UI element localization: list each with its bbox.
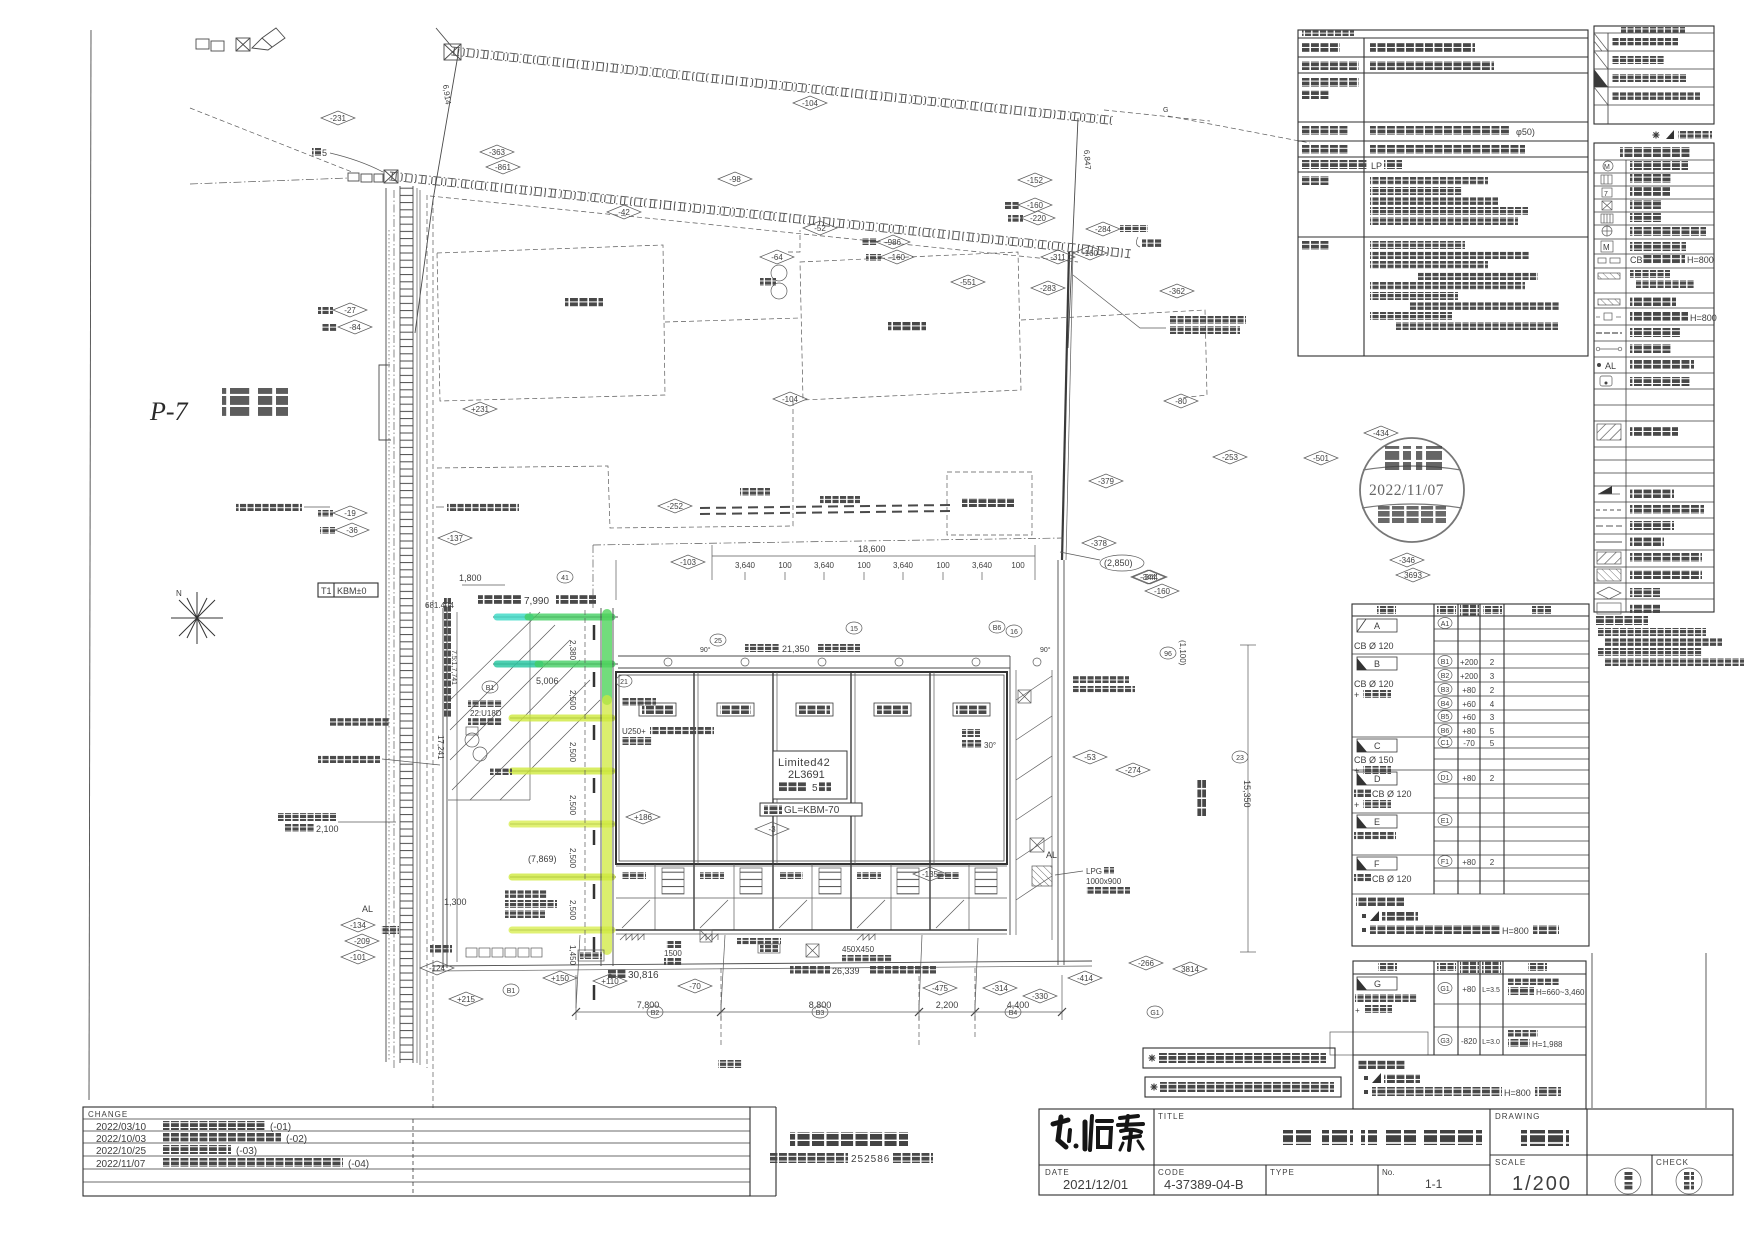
svg-text:+110: +110 xyxy=(601,977,619,986)
svg-text:5: 5 xyxy=(1490,739,1495,748)
svg-text:-160: -160 xyxy=(1027,201,1044,210)
svg-text:H=800: H=800 xyxy=(1687,255,1714,265)
svg-text:+215: +215 xyxy=(457,995,476,1004)
svg-text:B1: B1 xyxy=(507,988,516,995)
svg-text:-84: -84 xyxy=(349,323,361,332)
svg-text:-103: -103 xyxy=(680,558,697,567)
svg-text:CHECK: CHECK xyxy=(1656,1158,1689,1167)
svg-text:-134: -134 xyxy=(350,921,367,930)
svg-text:5: 5 xyxy=(812,783,818,794)
svg-text:252586: 252586 xyxy=(851,1154,890,1165)
svg-text:AL: AL xyxy=(1046,850,1057,860)
svg-text:3,640: 3,640 xyxy=(814,561,835,570)
svg-text:G: G xyxy=(1374,979,1381,989)
svg-text:8,800: 8,800 xyxy=(809,1000,832,1010)
svg-text:H=660~3,460: H=660~3,460 xyxy=(1536,988,1585,997)
svg-text:5: 5 xyxy=(322,148,327,158)
svg-text:100: 100 xyxy=(936,561,950,570)
svg-text:-36: -36 xyxy=(346,526,358,535)
svg-text:2,200: 2,200 xyxy=(936,1000,959,1010)
svg-text:+: + xyxy=(1355,1006,1360,1015)
svg-text:H=1,988: H=1,988 xyxy=(1532,1040,1563,1049)
svg-text:+200: +200 xyxy=(1460,658,1479,667)
svg-text:-311: -311 xyxy=(1050,253,1066,262)
svg-text:-346: -346 xyxy=(1399,556,1416,565)
svg-text:+: + xyxy=(1354,800,1359,810)
svg-text:1,450: 1,450 xyxy=(568,945,577,966)
svg-text:1/200: 1/200 xyxy=(1512,1173,1572,1195)
svg-text:-19: -19 xyxy=(344,509,356,518)
svg-text:H=800: H=800 xyxy=(1502,926,1529,936)
svg-text:+80: +80 xyxy=(1462,686,1476,695)
svg-text:-160: -160 xyxy=(1082,249,1099,258)
svg-text:-820: -820 xyxy=(1461,1037,1478,1046)
svg-text:3,640: 3,640 xyxy=(972,561,993,570)
svg-text:L=3.5: L=3.5 xyxy=(1482,987,1500,994)
svg-text:3693: 3693 xyxy=(1404,571,1422,580)
svg-text:B4: B4 xyxy=(1441,701,1450,708)
svg-text:-314: -314 xyxy=(992,984,1009,993)
svg-text:No.: No. xyxy=(1382,1168,1394,1177)
svg-text:-231: -231 xyxy=(330,114,347,123)
svg-text:90°: 90° xyxy=(1040,646,1051,654)
svg-text:2: 2 xyxy=(1490,774,1495,783)
svg-text:H=800: H=800 xyxy=(1690,313,1717,323)
svg-text:CB Ø 150: CB Ø 150 xyxy=(1354,755,1394,765)
svg-text:G3: G3 xyxy=(1440,1038,1449,1045)
svg-text:-252: -252 xyxy=(667,502,684,511)
svg-text:C1: C1 xyxy=(1441,740,1450,747)
svg-text:2,380: 2,380 xyxy=(568,640,577,661)
svg-text:-362: -362 xyxy=(1169,287,1186,296)
svg-text:25: 25 xyxy=(714,638,722,645)
svg-text:-98: -98 xyxy=(729,175,741,184)
svg-text:-53: -53 xyxy=(1084,753,1096,762)
svg-text:4-37389-04-B: 4-37389-04-B xyxy=(1164,1177,1244,1192)
svg-text:G: G xyxy=(1163,107,1168,114)
svg-text:26,339: 26,339 xyxy=(832,966,860,976)
svg-text:P-7: P-7 xyxy=(149,397,189,426)
svg-text:AL: AL xyxy=(1605,361,1616,371)
svg-text:+186: +186 xyxy=(634,813,653,822)
svg-text:7,990: 7,990 xyxy=(524,596,549,607)
svg-text:-253: -253 xyxy=(1222,453,1239,462)
svg-text:CB Ø 120: CB Ø 120 xyxy=(1354,641,1394,651)
svg-text:+80: +80 xyxy=(1462,858,1476,867)
svg-text:2,500: 2,500 xyxy=(568,690,577,711)
svg-text:100: 100 xyxy=(778,561,792,570)
svg-text:GL=KBM-70: GL=KBM-70 xyxy=(784,805,840,816)
svg-text:2,100: 2,100 xyxy=(316,824,339,834)
svg-text:5,006: 5,006 xyxy=(536,676,559,686)
svg-text:B: B xyxy=(1374,659,1380,669)
svg-text:17,241: 17,241 xyxy=(436,735,445,760)
svg-text:-160: -160 xyxy=(889,253,906,262)
svg-text:2,500: 2,500 xyxy=(568,900,577,921)
svg-text:3: 3 xyxy=(1490,713,1495,722)
svg-text:G1: G1 xyxy=(1440,986,1449,993)
svg-text:7.5:1,7,741: 7.5:1,7,741 xyxy=(450,650,457,685)
svg-text:CB Ø 120: CB Ø 120 xyxy=(1354,679,1394,689)
svg-text:B1: B1 xyxy=(1441,659,1450,666)
svg-text:-64: -64 xyxy=(771,253,783,262)
svg-text:φ50): φ50) xyxy=(1516,127,1535,137)
svg-text:B2: B2 xyxy=(1441,673,1450,680)
svg-text:H=800: H=800 xyxy=(1504,1088,1531,1098)
svg-text:+80: +80 xyxy=(1462,985,1476,994)
svg-text:2: 2 xyxy=(1490,686,1495,695)
svg-text:30,816: 30,816 xyxy=(628,970,659,981)
svg-text:(1,100): (1,100) xyxy=(1178,640,1187,666)
svg-text:B3: B3 xyxy=(1441,687,1450,694)
svg-text:6,847: 6,847 xyxy=(1082,150,1092,171)
svg-text:3,640: 3,640 xyxy=(893,561,914,570)
svg-text:100: 100 xyxy=(1011,561,1025,570)
svg-text:DATE: DATE xyxy=(1045,1168,1070,1177)
svg-text:-70: -70 xyxy=(1463,739,1475,748)
svg-text:15: 15 xyxy=(850,626,858,633)
svg-text:B1: B1 xyxy=(486,685,495,692)
svg-text:CODE: CODE xyxy=(1158,1168,1185,1177)
svg-text:SCALE: SCALE xyxy=(1495,1158,1526,1167)
svg-text:-3: -3 xyxy=(768,825,776,834)
svg-text:-220: -220 xyxy=(1030,214,1047,223)
svg-text:CB: CB xyxy=(1630,255,1643,265)
svg-text:D: D xyxy=(1374,774,1381,784)
svg-text:1,800: 1,800 xyxy=(459,573,482,583)
svg-text:B5: B5 xyxy=(1441,714,1450,721)
svg-text:16: 16 xyxy=(1010,629,1018,636)
svg-text:3814: 3814 xyxy=(1181,965,1199,974)
svg-text:(-02): (-02) xyxy=(286,1134,307,1145)
svg-text:-274: -274 xyxy=(1125,766,1142,775)
svg-text:-42: -42 xyxy=(618,208,630,217)
svg-text:-283: -283 xyxy=(1040,284,1057,293)
svg-text:T1: T1 xyxy=(321,586,332,596)
svg-text:7,800: 7,800 xyxy=(637,1000,660,1010)
svg-text:-986: -986 xyxy=(885,238,902,247)
svg-text:90°: 90° xyxy=(700,646,711,654)
svg-text:-160: -160 xyxy=(1154,587,1171,596)
svg-text:-475: -475 xyxy=(932,984,949,993)
svg-text:M: M xyxy=(1603,243,1610,252)
svg-text:681.404: 681.404 xyxy=(425,601,454,610)
svg-text:-861: -861 xyxy=(495,163,512,172)
svg-text:-52: -52 xyxy=(814,224,826,233)
svg-text:(-03): (-03) xyxy=(236,1146,257,1157)
svg-text:-330: -330 xyxy=(1032,992,1049,1001)
svg-text:-80: -80 xyxy=(1175,397,1187,406)
svg-text:2022/10/25: 2022/10/25 xyxy=(96,1146,146,1157)
svg-text:L=3.0: L=3.0 xyxy=(1482,1039,1500,1046)
svg-text:+200: +200 xyxy=(1460,672,1479,681)
svg-text:2021/12/01: 2021/12/01 xyxy=(1063,1177,1128,1192)
svg-text:Limited42: Limited42 xyxy=(778,757,830,769)
svg-text:1000x900: 1000x900 xyxy=(1086,877,1122,886)
svg-text:+60: +60 xyxy=(1462,700,1476,709)
svg-text:-501: -501 xyxy=(1313,454,1330,463)
svg-text:21: 21 xyxy=(620,679,628,686)
svg-text:22:U18D: 22:U18D xyxy=(470,709,502,718)
svg-text:15,350: 15,350 xyxy=(1242,780,1252,808)
svg-text:-101: -101 xyxy=(350,953,367,962)
svg-text:TYPE: TYPE xyxy=(1270,1168,1295,1177)
svg-text:A1: A1 xyxy=(1441,621,1450,628)
svg-text:CB Ø 120: CB Ø 120 xyxy=(1372,874,1412,884)
svg-text:+60: +60 xyxy=(1462,713,1476,722)
svg-text:U250+: U250+ xyxy=(622,727,646,736)
svg-text:-379: -379 xyxy=(1098,477,1115,486)
svg-text:TITLE: TITLE xyxy=(1158,1112,1185,1121)
svg-text:2022/10/03: 2022/10/03 xyxy=(96,1134,146,1145)
svg-text:+80: +80 xyxy=(1462,727,1476,736)
svg-text:B3: B3 xyxy=(816,1010,825,1017)
svg-text:A: A xyxy=(1374,621,1380,631)
svg-text:-104: -104 xyxy=(782,395,799,404)
svg-text:LP: LP xyxy=(1371,161,1382,171)
svg-text:2022/11/07: 2022/11/07 xyxy=(96,1159,146,1170)
svg-text:F: F xyxy=(1374,859,1380,869)
svg-text:CB Ø 120: CB Ø 120 xyxy=(1372,789,1412,799)
svg-text:B6: B6 xyxy=(993,625,1002,632)
svg-text:-266: -266 xyxy=(1138,959,1155,968)
svg-text:-363: -363 xyxy=(489,148,506,157)
svg-text:2,500: 2,500 xyxy=(568,742,577,763)
svg-text:18,600: 18,600 xyxy=(858,544,886,554)
svg-text:AL: AL xyxy=(362,904,373,914)
svg-text:1,300: 1,300 xyxy=(444,897,467,907)
svg-text:C: C xyxy=(1374,741,1381,751)
svg-text:+231: +231 xyxy=(471,405,490,414)
svg-text:4: 4 xyxy=(1490,700,1495,709)
svg-text:7: 7 xyxy=(1604,191,1608,198)
svg-text:-27: -27 xyxy=(344,306,356,315)
svg-text:-284: -284 xyxy=(1095,225,1112,234)
svg-text:(7,869): (7,869) xyxy=(528,854,557,864)
svg-text:2: 2 xyxy=(1490,858,1495,867)
svg-text:2022/03/10: 2022/03/10 xyxy=(96,1122,146,1133)
svg-text:96: 96 xyxy=(1164,651,1172,658)
svg-text:-135: -135 xyxy=(922,870,939,879)
svg-text:M: M xyxy=(1604,164,1610,171)
svg-text:1-1: 1-1 xyxy=(1425,1177,1443,1191)
svg-text:100: 100 xyxy=(857,561,871,570)
svg-text:(-01): (-01) xyxy=(270,1122,291,1133)
svg-text:450X450: 450X450 xyxy=(842,945,875,954)
svg-text:30°: 30° xyxy=(984,741,996,750)
svg-text:-124: -124 xyxy=(429,964,446,973)
svg-text:N: N xyxy=(176,589,182,598)
svg-text:-70: -70 xyxy=(689,982,701,991)
svg-text:-378: -378 xyxy=(1091,539,1108,548)
svg-text:B4: B4 xyxy=(1009,1010,1018,1017)
svg-text:2,500: 2,500 xyxy=(568,795,577,816)
svg-text:2,500: 2,500 xyxy=(568,848,577,869)
svg-text:F1: F1 xyxy=(1441,859,1449,866)
svg-text:3: 3 xyxy=(1490,672,1495,681)
svg-text:-414: -414 xyxy=(1077,974,1094,983)
svg-text:G1: G1 xyxy=(1150,1010,1159,1017)
svg-text:-551: -551 xyxy=(960,278,977,287)
svg-text:+150: +150 xyxy=(551,974,570,983)
svg-text:3,640: 3,640 xyxy=(735,561,756,570)
svg-text:+80: +80 xyxy=(1462,774,1476,783)
svg-text:-344: -344 xyxy=(1140,573,1157,582)
svg-text:-434: -434 xyxy=(1373,429,1390,438)
svg-text:E1: E1 xyxy=(1441,818,1450,825)
svg-text:LPG: LPG xyxy=(1086,867,1102,876)
svg-text:E: E xyxy=(1374,817,1380,827)
svg-text:+: + xyxy=(1354,690,1359,700)
svg-text:-209: -209 xyxy=(354,937,371,946)
svg-text:B2: B2 xyxy=(651,1010,660,1017)
svg-text:CHANGE: CHANGE xyxy=(88,1110,128,1119)
svg-text:23: 23 xyxy=(1236,755,1244,762)
svg-text:1500: 1500 xyxy=(664,949,682,958)
svg-text:B6: B6 xyxy=(1441,728,1450,735)
svg-text:2022/11/07: 2022/11/07 xyxy=(1369,482,1444,499)
svg-text:-137: -137 xyxy=(447,534,464,543)
svg-text:D1: D1 xyxy=(1441,775,1450,782)
svg-text:(-04): (-04) xyxy=(348,1159,369,1170)
svg-text:5: 5 xyxy=(1490,727,1495,736)
svg-text:21,350: 21,350 xyxy=(782,644,810,654)
svg-text:-104: -104 xyxy=(802,99,819,108)
svg-text:4,400: 4,400 xyxy=(1007,1000,1030,1010)
svg-text:2: 2 xyxy=(1490,658,1495,667)
svg-text:KBM±0: KBM±0 xyxy=(337,586,366,596)
svg-text:DRAWING: DRAWING xyxy=(1495,1112,1540,1121)
svg-text:2L3691: 2L3691 xyxy=(788,769,825,781)
svg-text:-152: -152 xyxy=(1027,176,1044,185)
svg-text:(2,850): (2,850) xyxy=(1104,558,1133,568)
svg-text:41: 41 xyxy=(561,575,569,582)
